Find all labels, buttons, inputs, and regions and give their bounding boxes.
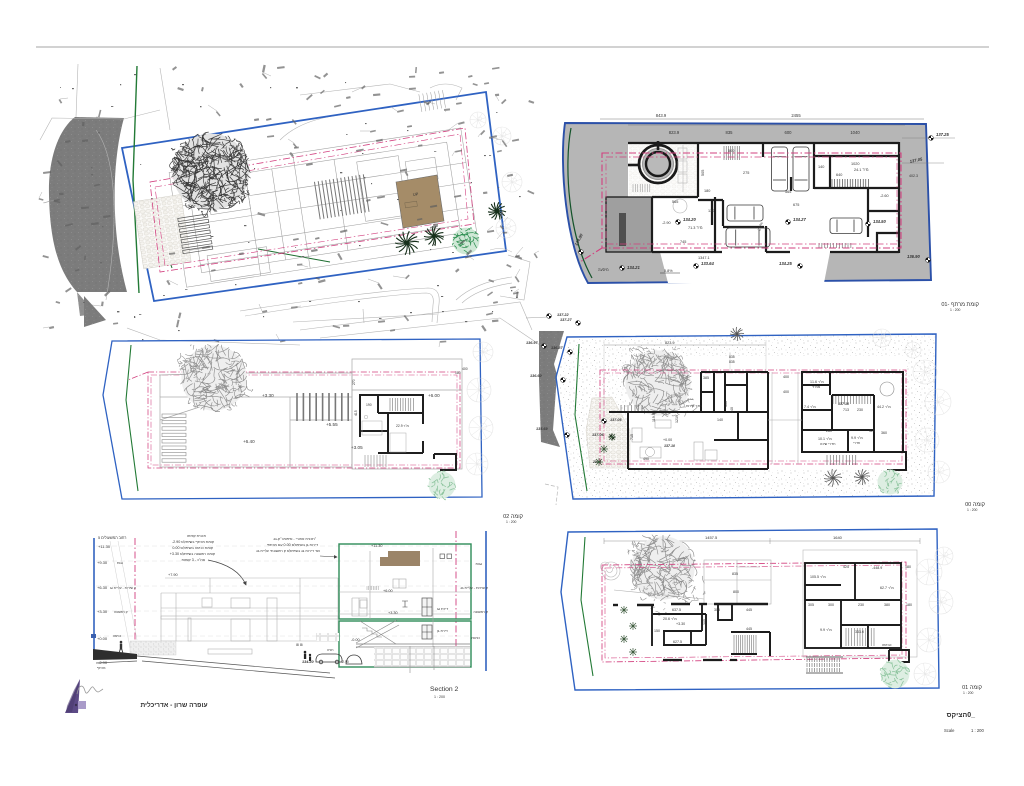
- svg-text:136.87: 136.87: [551, 346, 564, 350]
- svg-text:400: 400: [783, 390, 789, 394]
- svg-text:מרתף: מרתף: [97, 666, 106, 670]
- svg-text:+3.30 קומה ראשונה בשיפולס: +3.30 קומה ראשונה בשיפולס: [170, 552, 215, 556]
- svg-text:415: 415: [354, 410, 358, 416]
- svg-text:135.69: 135.69: [536, 427, 549, 431]
- svg-text:105.5 מ"ר: 105.5 מ"ר: [810, 575, 826, 579]
- svg-text:+6.00: +6.00: [428, 393, 440, 398]
- svg-text:134.20: 134.20: [683, 217, 696, 222]
- svg-text:22.9 מ"ר: 22.9 מ"ר: [396, 424, 410, 428]
- svg-text:ועד דירות גג בשיפולס ק ראשונתי: ועד דירות גג בשיפולס ק ראשונתי עליית גג: [256, 549, 320, 553]
- svg-text:5.8%: 5.8%: [664, 269, 673, 273]
- svg-text:400: 400: [783, 375, 789, 379]
- svg-text:137.27: 137.27: [560, 318, 573, 322]
- svg-text:מיסעה: מיסעה: [598, 268, 609, 272]
- svg-text:דירת גג: דירת גג: [437, 607, 448, 611]
- svg-text:9.9 מ"ר: 9.9 מ"ר: [851, 436, 863, 440]
- svg-text:134.25: 134.25: [779, 261, 792, 266]
- svg-text:ק ראשונה: ק ראשונה: [474, 610, 488, 614]
- svg-text:160: 160: [724, 401, 728, 407]
- svg-text:-448.9: -448.9: [872, 566, 882, 570]
- svg-text:445: 445: [746, 608, 752, 612]
- svg-text:835: 835: [729, 360, 735, 364]
- svg-text:140: 140: [717, 418, 723, 422]
- svg-text:500: 500: [728, 149, 734, 153]
- svg-text:565: 565: [672, 200, 678, 204]
- svg-text:0.00 קומת כניסה בשיפולס: 0.00 קומת כניסה בשיפולס: [172, 546, 213, 550]
- svg-text:180: 180: [906, 603, 912, 607]
- svg-text:745: 745: [680, 240, 686, 244]
- svg-text:+3.30: +3.30: [676, 622, 685, 626]
- svg-text:445: 445: [746, 627, 752, 631]
- svg-text:+11.30: +11.30: [98, 544, 111, 549]
- svg-text:Section 2: Section 2: [430, 686, 459, 693]
- svg-text:640: 640: [836, 173, 842, 177]
- svg-text:+6.40: +6.40: [243, 439, 255, 444]
- svg-text:+11.30: +11.30: [371, 544, 382, 548]
- svg-text:+0.00: +0.00: [663, 438, 672, 442]
- svg-text:1 : 200: 1 : 200: [963, 691, 973, 695]
- svg-text:רחוב המשעולים 5: רחוב המשעולים 5: [98, 536, 126, 540]
- svg-text:305: 305: [808, 603, 814, 607]
- svg-text:180: 180: [704, 189, 710, 193]
- svg-text:1 : 200: 1 : 200: [506, 520, 516, 524]
- svg-text:ק שירות - עליית גג: ק שירות - עליית גג: [460, 586, 488, 590]
- svg-text:חניה: חניה: [327, 648, 334, 652]
- svg-text:+6.30: +6.30: [97, 585, 108, 590]
- svg-text:⊞ ⊞: ⊞ ⊞: [296, 643, 303, 647]
- svg-text:ק שירות - עליית גג: ק שירות - עליית גג: [110, 586, 136, 590]
- svg-text:כניסה: כניסה: [113, 634, 121, 638]
- svg-text:1457.5: 1457.5: [705, 535, 718, 540]
- svg-text:חדרי שינה: חדרי שינה: [820, 442, 836, 446]
- svg-text:800: 800: [733, 590, 739, 594]
- svg-text:137.22: 137.22: [557, 313, 570, 317]
- svg-text:600: 600: [785, 130, 793, 135]
- svg-text:תכנית אחורי - סיפומו "ק-גג": תכנית אחורי - סיפומו "ק-גג": [274, 537, 317, 541]
- svg-text:חדרי: חדרי: [853, 441, 861, 445]
- svg-text:270: 270: [352, 379, 356, 385]
- svg-text:9.9 מ"ר: 9.9 מ"ר: [820, 628, 832, 632]
- svg-text:44.2 מ"ר: 44.2 מ"ר: [877, 405, 891, 409]
- svg-text:תכנית קודמו: תכנית קודמו: [187, 534, 206, 538]
- svg-text:136.97: 136.97: [526, 341, 539, 345]
- svg-text:+6.00: +6.00: [383, 589, 393, 593]
- svg-text:דירות גן בשיפולס 0.00 עם מרתפי: דירות גן בשיפולס 0.00 עם מרתפי: [267, 543, 318, 547]
- svg-text:400: 400: [462, 367, 468, 371]
- svg-text:סקיצה0_: סקיצה0_: [947, 712, 975, 719]
- svg-text:1640: 1640: [833, 535, 843, 540]
- svg-text:835: 835: [726, 130, 734, 135]
- svg-text:136.90: 136.90: [907, 254, 920, 259]
- svg-text:134.21: 134.21: [627, 265, 640, 270]
- svg-text:-2.60: -2.60: [880, 194, 889, 198]
- svg-text:+3.30: +3.30: [262, 393, 274, 398]
- svg-text:137.05: 137.05: [610, 418, 623, 422]
- svg-text:137.10: 137.10: [664, 444, 675, 448]
- svg-text:סה"כ - 3 קומות: סה"כ - 3 קומות: [181, 558, 205, 562]
- svg-text:180: 180: [455, 371, 461, 375]
- svg-text:UP: UP: [412, 191, 419, 197]
- svg-text:333.0: 333.0: [855, 630, 864, 634]
- svg-text:134.50: 134.50: [873, 219, 886, 224]
- svg-text:137.06: 137.06: [592, 433, 605, 437]
- svg-text:565: 565: [785, 190, 791, 194]
- svg-text:134.27: 134.27: [793, 217, 806, 222]
- svg-text:24.1 מ"ר: 24.1 מ"ר: [854, 168, 869, 172]
- svg-text:137.10: 137.10: [838, 402, 849, 406]
- svg-text:627.5: 627.5: [673, 640, 682, 644]
- svg-text:1219: 1219: [675, 415, 679, 423]
- svg-text:1 : 200: 1 : 200: [967, 508, 977, 512]
- svg-text:1020: 1020: [851, 162, 859, 166]
- svg-text:360: 360: [881, 431, 887, 435]
- svg-text:130: 130: [708, 209, 714, 213]
- svg-text:490: 490: [643, 457, 649, 461]
- svg-text:425: 425: [843, 565, 849, 569]
- svg-text:גגות: גגות: [476, 562, 483, 566]
- svg-text:119.5: 119.5: [652, 413, 656, 422]
- svg-text:230: 230: [857, 408, 863, 412]
- svg-text:136.60: 136.60: [530, 374, 543, 378]
- svg-text:דירת גן: דירת גן: [437, 629, 448, 633]
- svg-text:675: 675: [793, 203, 799, 207]
- svg-text:-2.90: -2.90: [662, 221, 671, 225]
- svg-text:280: 280: [826, 429, 832, 433]
- svg-text:ממ"ד: ממ"ד: [812, 385, 821, 389]
- svg-text:320: 320: [869, 429, 875, 433]
- svg-text:835: 835: [729, 355, 735, 359]
- svg-text:300: 300: [828, 603, 834, 607]
- svg-text:עופרה שרון - אדריכלית: עופרה שרון - אדריכלית: [140, 701, 207, 709]
- svg-text:10.1 מ"ר: 10.1 מ"ר: [818, 437, 832, 441]
- svg-text:305: 305: [703, 619, 707, 625]
- svg-text:1 : 200: 1 : 200: [434, 695, 445, 699]
- svg-text:190: 190: [366, 403, 372, 407]
- svg-text:+9.30: +9.30: [97, 560, 108, 565]
- svg-text:505: 505: [701, 170, 705, 176]
- svg-text:715: 715: [630, 434, 634, 440]
- svg-text:305: 305: [714, 608, 720, 612]
- svg-text:134.20: 134.20: [302, 660, 315, 664]
- svg-text:1 : 200: 1 : 200: [971, 728, 984, 733]
- svg-text:Scale: Scale: [944, 728, 955, 733]
- svg-text:1040: 1040: [850, 130, 860, 135]
- svg-text:140: 140: [818, 165, 824, 169]
- svg-text:240: 240: [730, 407, 734, 413]
- svg-text:כביסה: כביסה: [882, 643, 892, 647]
- svg-text:חדר אירוח: חדר אירוח: [686, 404, 702, 408]
- svg-text:-2.90 קומת מרתף בשיפולס: -2.90 קומת מרתף בשיפולס: [172, 540, 214, 544]
- svg-text:180: 180: [905, 565, 911, 569]
- svg-text:+5.55: +5.55: [326, 422, 338, 427]
- svg-text:380: 380: [884, 603, 890, 607]
- svg-text:275: 275: [743, 171, 749, 175]
- svg-text:62.7 מ"ר: 62.7 מ"ר: [880, 586, 894, 590]
- svg-text:71.3 מ"ר: 71.3 מ"ר: [688, 226, 703, 230]
- svg-text:11.6 מ"ר: 11.6 מ"ר: [810, 380, 824, 384]
- svg-text:1347.1: 1347.1: [698, 256, 710, 260]
- svg-text:ק ראשונה: ק ראשונה: [114, 610, 128, 614]
- svg-text:385: 385: [703, 376, 709, 380]
- svg-text:-2.90: -2.90: [341, 660, 349, 664]
- svg-text:133.64: 133.64: [701, 261, 714, 266]
- svg-text:+0.00: +0.00: [97, 636, 108, 641]
- svg-text:823.9: 823.9: [669, 130, 680, 135]
- svg-text:835: 835: [732, 572, 738, 576]
- svg-text:230: 230: [858, 603, 864, 607]
- svg-text:7.4 מ"ר: 7.4 מ"ר: [804, 405, 816, 409]
- svg-text:+3.30: +3.30: [97, 609, 108, 614]
- svg-text:20.6 מ"ר: 20.6 מ"ר: [663, 617, 677, 621]
- svg-text:713: 713: [843, 408, 849, 412]
- svg-text:843.9: 843.9: [656, 113, 667, 118]
- svg-text:+7.90: +7.90: [168, 573, 178, 577]
- svg-text:+3.30: +3.30: [388, 611, 398, 615]
- svg-text:150: 150: [654, 629, 660, 633]
- svg-text:כניסה: כניסה: [471, 636, 480, 640]
- svg-text:1 : 200: 1 : 200: [950, 308, 960, 312]
- svg-text:+3.05: +3.05: [351, 445, 363, 450]
- svg-text:2455: 2455: [791, 113, 801, 118]
- svg-text:402.3: 402.3: [909, 174, 918, 178]
- svg-text:823.9: 823.9: [665, 341, 675, 345]
- svg-text:137.25: 137.25: [936, 132, 949, 137]
- svg-text:637.5: 637.5: [672, 608, 681, 612]
